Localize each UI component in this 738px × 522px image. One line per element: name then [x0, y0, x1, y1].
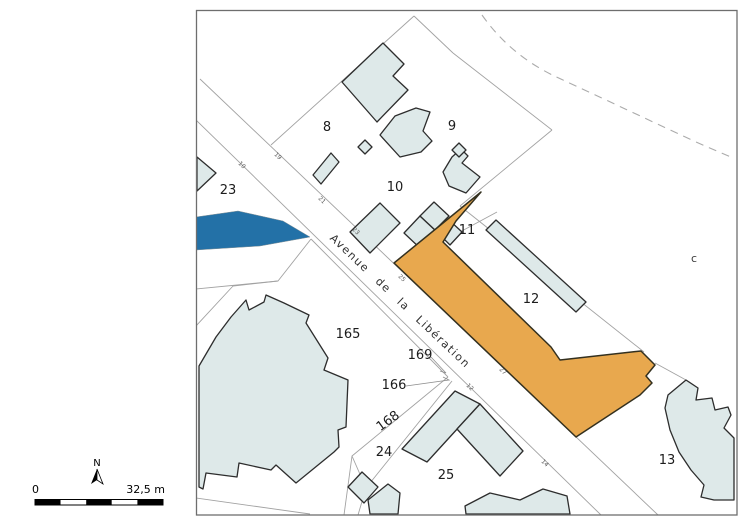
scale-bar: 0 32,5 m	[32, 483, 165, 505]
parcel-label-13: 13	[659, 453, 676, 468]
parcel-label-8: 8	[323, 120, 331, 135]
parcel-label-9: 9	[448, 119, 456, 134]
scale-segment-4	[112, 500, 138, 506]
parcel-label-12: 12	[523, 292, 540, 307]
parcel-label-24: 24	[376, 445, 393, 460]
north-arrow-icon	[91, 469, 97, 484]
parcel-label-10: 10	[387, 180, 404, 195]
scale-segment-1	[35, 500, 61, 506]
cadastral-map-page: 8 9 10 11 12 13 23 24 25 165 166 168 169…	[0, 0, 738, 522]
parcel-label-11: 11	[459, 223, 476, 238]
parcel-label-166: 166	[382, 378, 407, 393]
north-arrow-icon-right	[97, 469, 103, 484]
scale-segment-2	[61, 500, 87, 506]
map-canvas: 8 9 10 11 12 13 23 24 25 165 166 168 169…	[0, 0, 738, 522]
scale-max-label: 32,5 m	[126, 483, 165, 496]
scale-segment-3	[86, 500, 112, 506]
north-arrow: N	[91, 458, 103, 484]
parcel-label-23: 23	[220, 183, 237, 198]
section-label-c: c	[691, 252, 697, 265]
parcel-label-169: 169	[408, 348, 433, 363]
north-label: N	[93, 458, 100, 469]
parcel-label-165: 165	[336, 327, 361, 342]
scale-segment-5	[137, 500, 163, 506]
scale-zero-label: 0	[32, 483, 39, 496]
parcel-label-25: 25	[438, 468, 455, 483]
